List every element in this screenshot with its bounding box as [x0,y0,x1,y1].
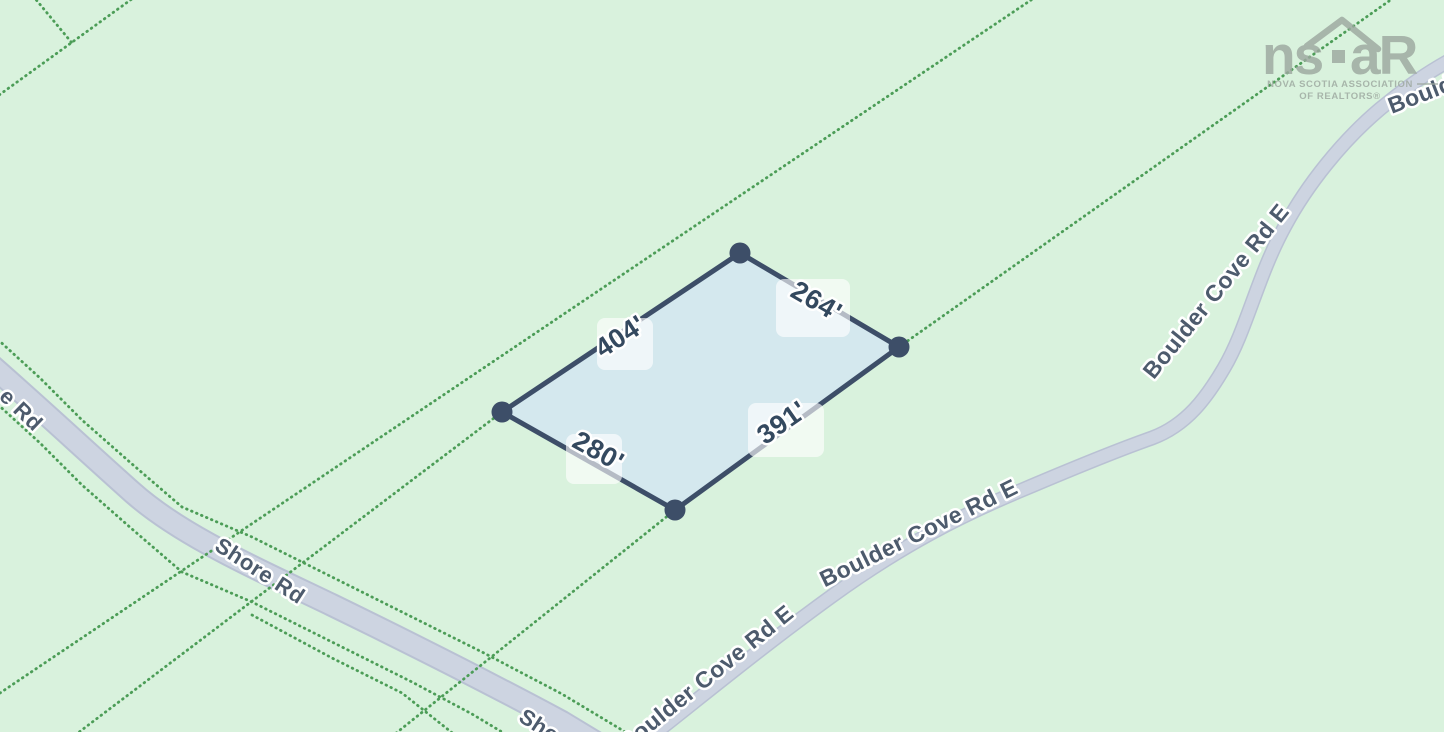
parcel-vertex-right[interactable] [889,337,910,358]
boulder-cove-rd-label-upper: Boulder Cove Rd E [1137,199,1294,384]
parcel-boundary-line [0,0,136,98]
nsar-logo-tagline-2: OF REALTORS® [1299,91,1380,102]
nsar-logo-text-right: aR [1350,24,1418,86]
parcel-boundary-line [33,0,72,43]
shore-rd-label: Shore Rd [211,533,310,609]
shore-rd-road-casing [0,366,600,732]
parcel-vertex-left[interactable] [492,402,513,423]
nsar-logo-tagline-1: NOVA SCOTIA ASSOCIATION [1267,79,1413,90]
nsar-logo-text-left: ns [1262,24,1323,86]
boulder-cove-rd-label-mid: Boulder Cove Rd E [815,474,1021,592]
map-viewport[interactable]: 404' 264' 391' 280' e Rd Shore Rd Shore … [0,0,1444,732]
nsar-logo: ns aR NOVA SCOTIA ASSOCIATION OF REALTOR… [1262,20,1438,102]
parcel-vertex-bottom[interactable] [665,500,686,521]
boulder-cove-rd-label-bottom: Boulder Cove Rd E [614,599,799,732]
parcel-map[interactable]: 404' 264' 391' 280' e Rd Shore Rd Shore … [0,0,1444,732]
shore-rd-road [0,366,600,732]
nsar-logo-dot [1332,50,1345,63]
parcel-vertex-top[interactable] [730,243,751,264]
